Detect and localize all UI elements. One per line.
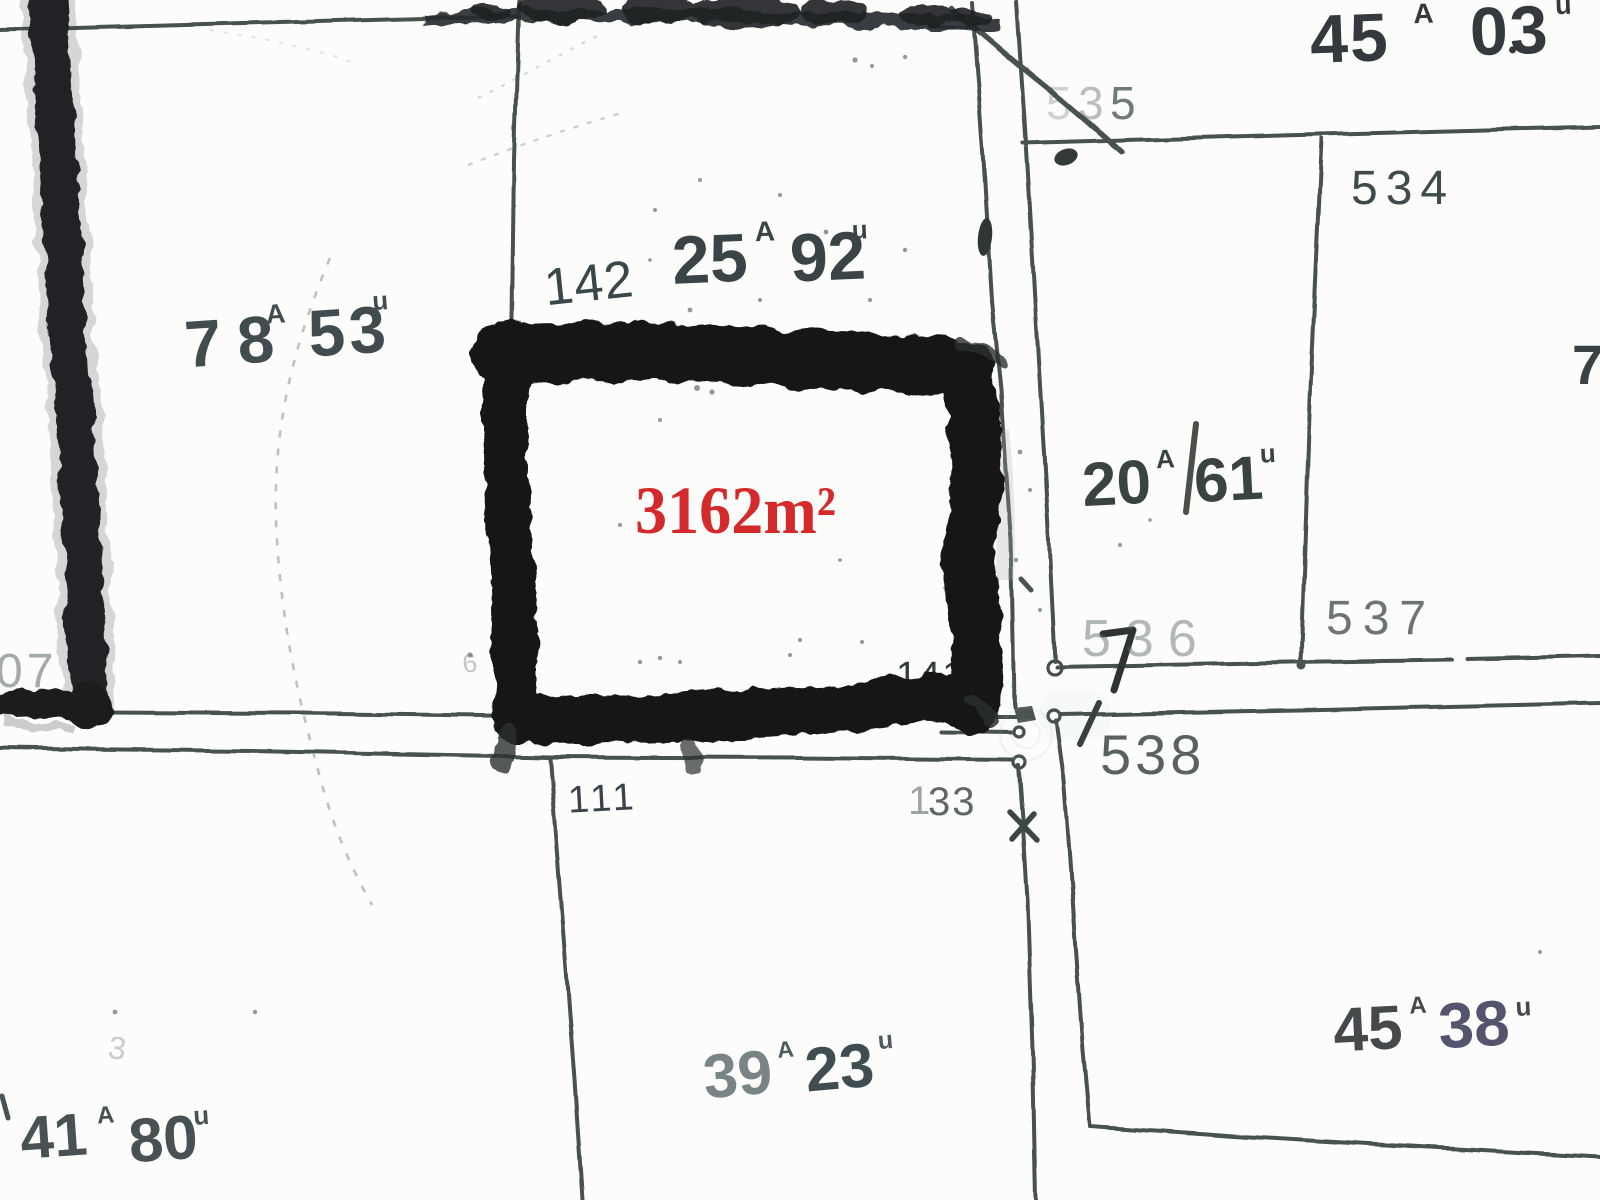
svg-text:23: 23 xyxy=(802,1031,877,1106)
svg-text:38: 38 xyxy=(1436,986,1511,1062)
svg-text:u: u xyxy=(1259,438,1276,469)
svg-text:u: u xyxy=(371,285,389,316)
svg-text:u: u xyxy=(851,214,868,245)
svg-text:A: A xyxy=(96,1101,115,1129)
svg-text:45: 45 xyxy=(1332,993,1404,1066)
svg-text:5: 5 xyxy=(1046,77,1072,129)
svg-text:39: 39 xyxy=(700,1038,775,1113)
svg-text:A: A xyxy=(265,298,287,329)
svg-text:03: 03 xyxy=(1469,0,1551,70)
svg-text:A: A xyxy=(1413,0,1434,29)
svg-text:80: 80 xyxy=(126,1103,200,1177)
svg-text:3: 3 xyxy=(1078,77,1104,129)
svg-text:111: 111 xyxy=(567,776,639,822)
svg-text:142: 142 xyxy=(541,250,636,317)
svg-text:41: 41 xyxy=(18,1100,89,1171)
svg-text:25: 25 xyxy=(670,220,749,299)
svg-text:07: 07 xyxy=(0,645,57,698)
svg-text:3162m²: 3162m² xyxy=(635,472,836,548)
svg-text:45: 45 xyxy=(1309,0,1391,78)
svg-text:A: A xyxy=(1409,992,1428,1020)
svg-text:A: A xyxy=(1155,443,1176,474)
svg-text:538: 538 xyxy=(1100,723,1205,786)
svg-text:534: 534 xyxy=(1351,162,1455,215)
svg-text:u: u xyxy=(877,1026,895,1055)
svg-text:61: 61 xyxy=(1192,444,1264,517)
svg-text:536: 536 xyxy=(1082,610,1211,668)
svg-text:A: A xyxy=(776,1036,795,1063)
svg-text:u: u xyxy=(1515,991,1532,1022)
svg-text:A: A xyxy=(754,215,776,247)
svg-text:5: 5 xyxy=(1110,77,1136,129)
svg-text:33: 33 xyxy=(928,780,977,824)
svg-text:537: 537 xyxy=(1326,592,1436,645)
svg-text:u: u xyxy=(192,1100,210,1131)
svg-text:u: u xyxy=(1555,0,1573,20)
svg-text:7: 7 xyxy=(1572,333,1600,396)
svg-text:20: 20 xyxy=(1080,448,1152,521)
